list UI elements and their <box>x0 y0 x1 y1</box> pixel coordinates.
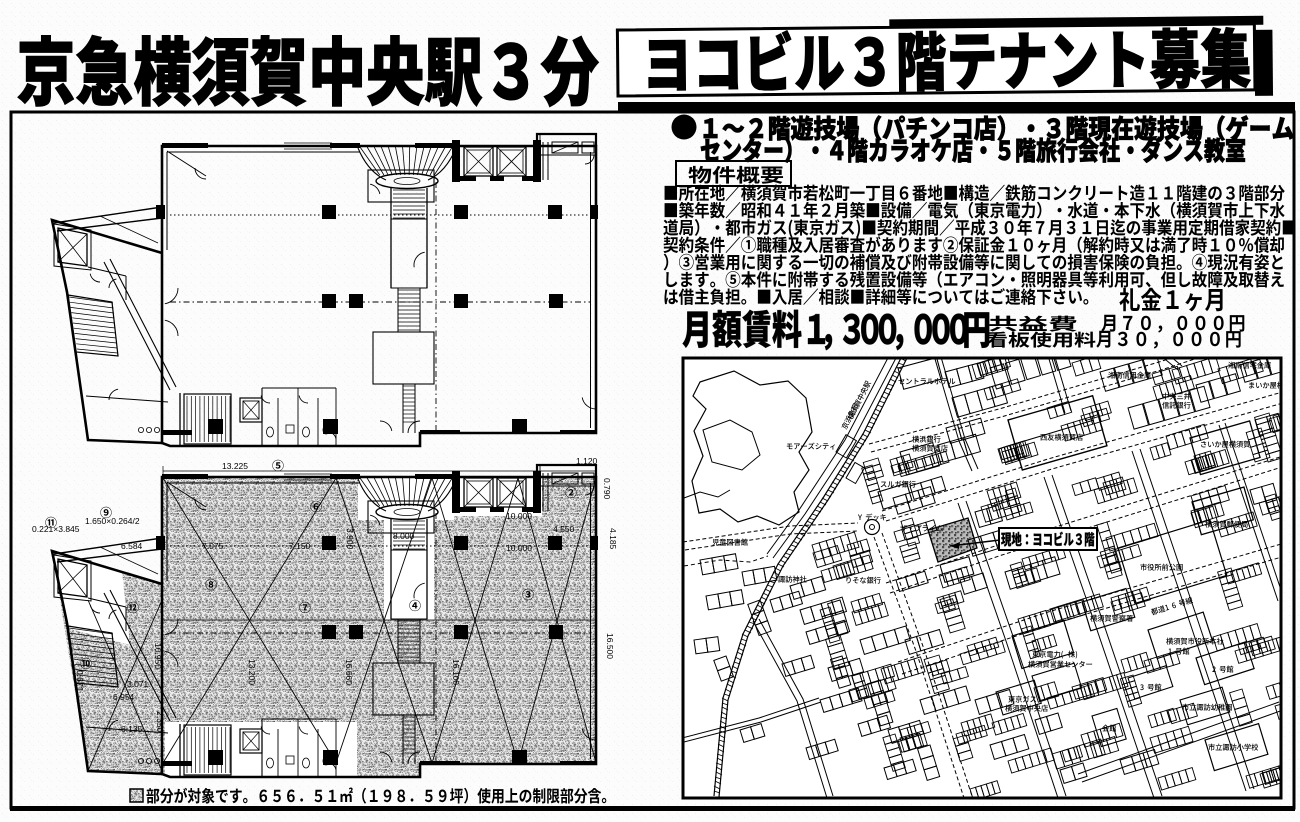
svg-text:10.000: 10.000 <box>506 511 532 521</box>
svg-text:2.350: 2.350 <box>155 711 165 733</box>
svg-text:16.660: 16.660 <box>344 659 354 685</box>
svg-text:10.000: 10.000 <box>506 543 532 553</box>
svg-text:6.954: 6.954 <box>113 692 135 702</box>
svg-text:4.185: 4.185 <box>608 528 618 550</box>
svg-text:0.790: 0.790 <box>602 478 612 500</box>
svg-text:13.225: 13.225 <box>222 461 248 471</box>
svg-text:8.000: 8.000 <box>393 531 415 541</box>
svg-text:1.120: 1.120 <box>576 456 598 466</box>
svg-text:6.584: 6.584 <box>121 541 143 551</box>
svg-text:4.550: 4.550 <box>553 524 575 534</box>
svg-text:0.221×3.845: 0.221×3.845 <box>32 524 80 534</box>
svg-text:1.650×0.264/2: 1.650×0.264/2 <box>85 516 140 526</box>
svg-text:10.950: 10.950 <box>153 643 163 669</box>
svg-text:16.100: 16.100 <box>451 659 461 685</box>
svg-text:6.135: 6.135 <box>121 724 143 734</box>
svg-text:13.200: 13.200 <box>247 659 257 685</box>
svg-text:16.500: 16.500 <box>605 633 615 659</box>
svg-text:3.900: 3.900 <box>345 528 355 550</box>
svg-text:3.071: 3.071 <box>127 679 149 689</box>
svg-text:0.671: 0.671 <box>75 670 85 692</box>
svg-text:7.075: 7.075 <box>202 541 224 551</box>
svg-text:7.150: 7.150 <box>289 541 311 551</box>
